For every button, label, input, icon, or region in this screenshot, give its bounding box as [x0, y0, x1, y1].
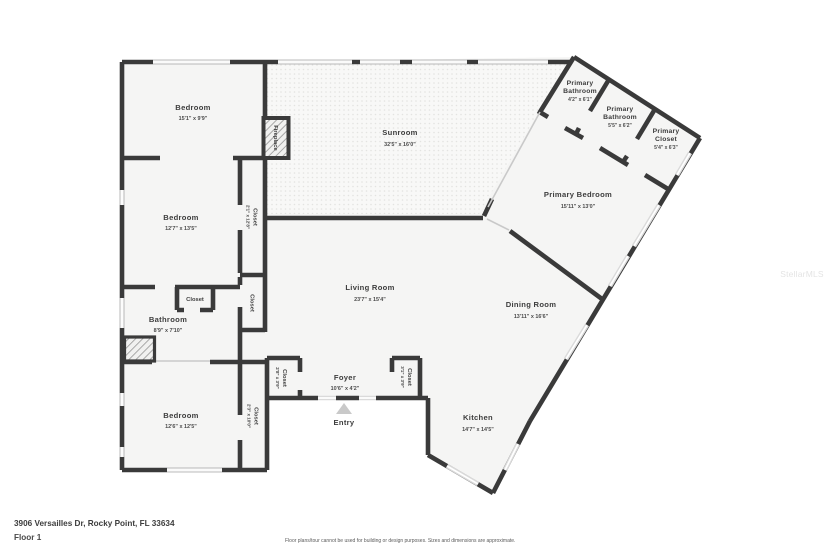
closet-hall-label: Closet [252, 208, 258, 226]
disclaimer-text: Floor plans/tour cannot be used for buil… [285, 538, 515, 544]
room-label-primary-closet-a: Primary [653, 128, 680, 135]
floor-plan-page: Bedroom 15'1" x 9'9" Bedroom 12'7" x 13'… [0, 0, 828, 551]
closet-foyer-left-label: Closet [281, 369, 287, 387]
address-text: 3906 Versailles Dr, Rocky Point, FL 3363… [14, 519, 175, 528]
closet-foyer-right-dims: 3'1" x 3'9" [400, 366, 405, 387]
room-dims-primary-closet: 5'4" x 6'3" [654, 145, 678, 151]
fireplace-label: Fireplace [272, 125, 278, 151]
room-dims-sunroom: 32'5" x 16'0" [384, 142, 416, 148]
closet-bath-label: Closet [186, 297, 204, 303]
floor-plan-canvas: Bedroom 15'1" x 9'9" Bedroom 12'7" x 13'… [0, 0, 828, 551]
room-dims-bedroom-2: 12'7" x 13'5" [165, 226, 197, 232]
closet-bed3-dims: 2'3" x 10'0" [247, 404, 252, 428]
room-dims-dining-room: 13'11" x 16'6" [514, 314, 549, 320]
room-label-primary-bathroom-2a: Primary [607, 106, 634, 113]
closet-bed3-label: Closet [253, 407, 259, 425]
room-label-primary-bathroom-1a: Primary [567, 80, 594, 87]
room-dims-primary-bathroom-1: 4'2" x 6'1" [568, 97, 592, 103]
room-label-bedroom-1: Bedroom [175, 103, 210, 112]
room-label-dining-room: Dining Room [506, 300, 557, 309]
shower [125, 337, 155, 361]
room-dims-bedroom-3: 12'6" x 12'5" [165, 424, 197, 430]
room-label-kitchen: Kitchen [463, 413, 493, 422]
closet-hall-dims: 2'1" x 12'8" [246, 205, 251, 229]
closet-foyer-right-label: Closet [406, 368, 412, 386]
room-label-foyer: Foyer [334, 373, 356, 382]
closet-foyer-left-dims: 2'8" x 3'9" [275, 367, 280, 388]
room-label-primary-bedroom: Primary Bedroom [544, 190, 612, 199]
room-dims-kitchen: 14'7" x 14'5" [462, 427, 494, 433]
room-label-bedroom-3: Bedroom [163, 411, 198, 420]
watermark-text: StellarMLS [780, 269, 824, 279]
room-label-primary-bathroom-2b: Bathroom [603, 114, 637, 121]
room-dims-foyer: 10'6" x 4'2" [331, 386, 360, 392]
room-label-living-room: Living Room [345, 283, 394, 292]
room-label-entry: Entry [334, 418, 355, 427]
entry-arrow-icon [336, 403, 352, 414]
room-dims-primary-bedroom: 15'11" x 13'0" [561, 204, 596, 210]
room-dims-bathroom: 8'9" x 7'10" [154, 328, 183, 334]
room-label-primary-bathroom-1b: Bathroom [563, 88, 597, 95]
room-dims-living-room: 23'7" x 15'4" [354, 297, 386, 303]
room-dims-primary-bathroom-2: 5'5" x 6'2" [608, 123, 632, 129]
room-label-primary-closet-b: Closet [655, 136, 678, 143]
room-label-bathroom: Bathroom [149, 315, 187, 324]
room-label-bedroom-2: Bedroom [163, 213, 198, 222]
floor-label: Floor 1 [14, 533, 42, 542]
room-dims-bedroom-1: 15'1" x 9'9" [179, 116, 208, 122]
closet-hall2-label: Closet [249, 294, 255, 312]
room-label-sunroom: Sunroom [382, 128, 417, 137]
